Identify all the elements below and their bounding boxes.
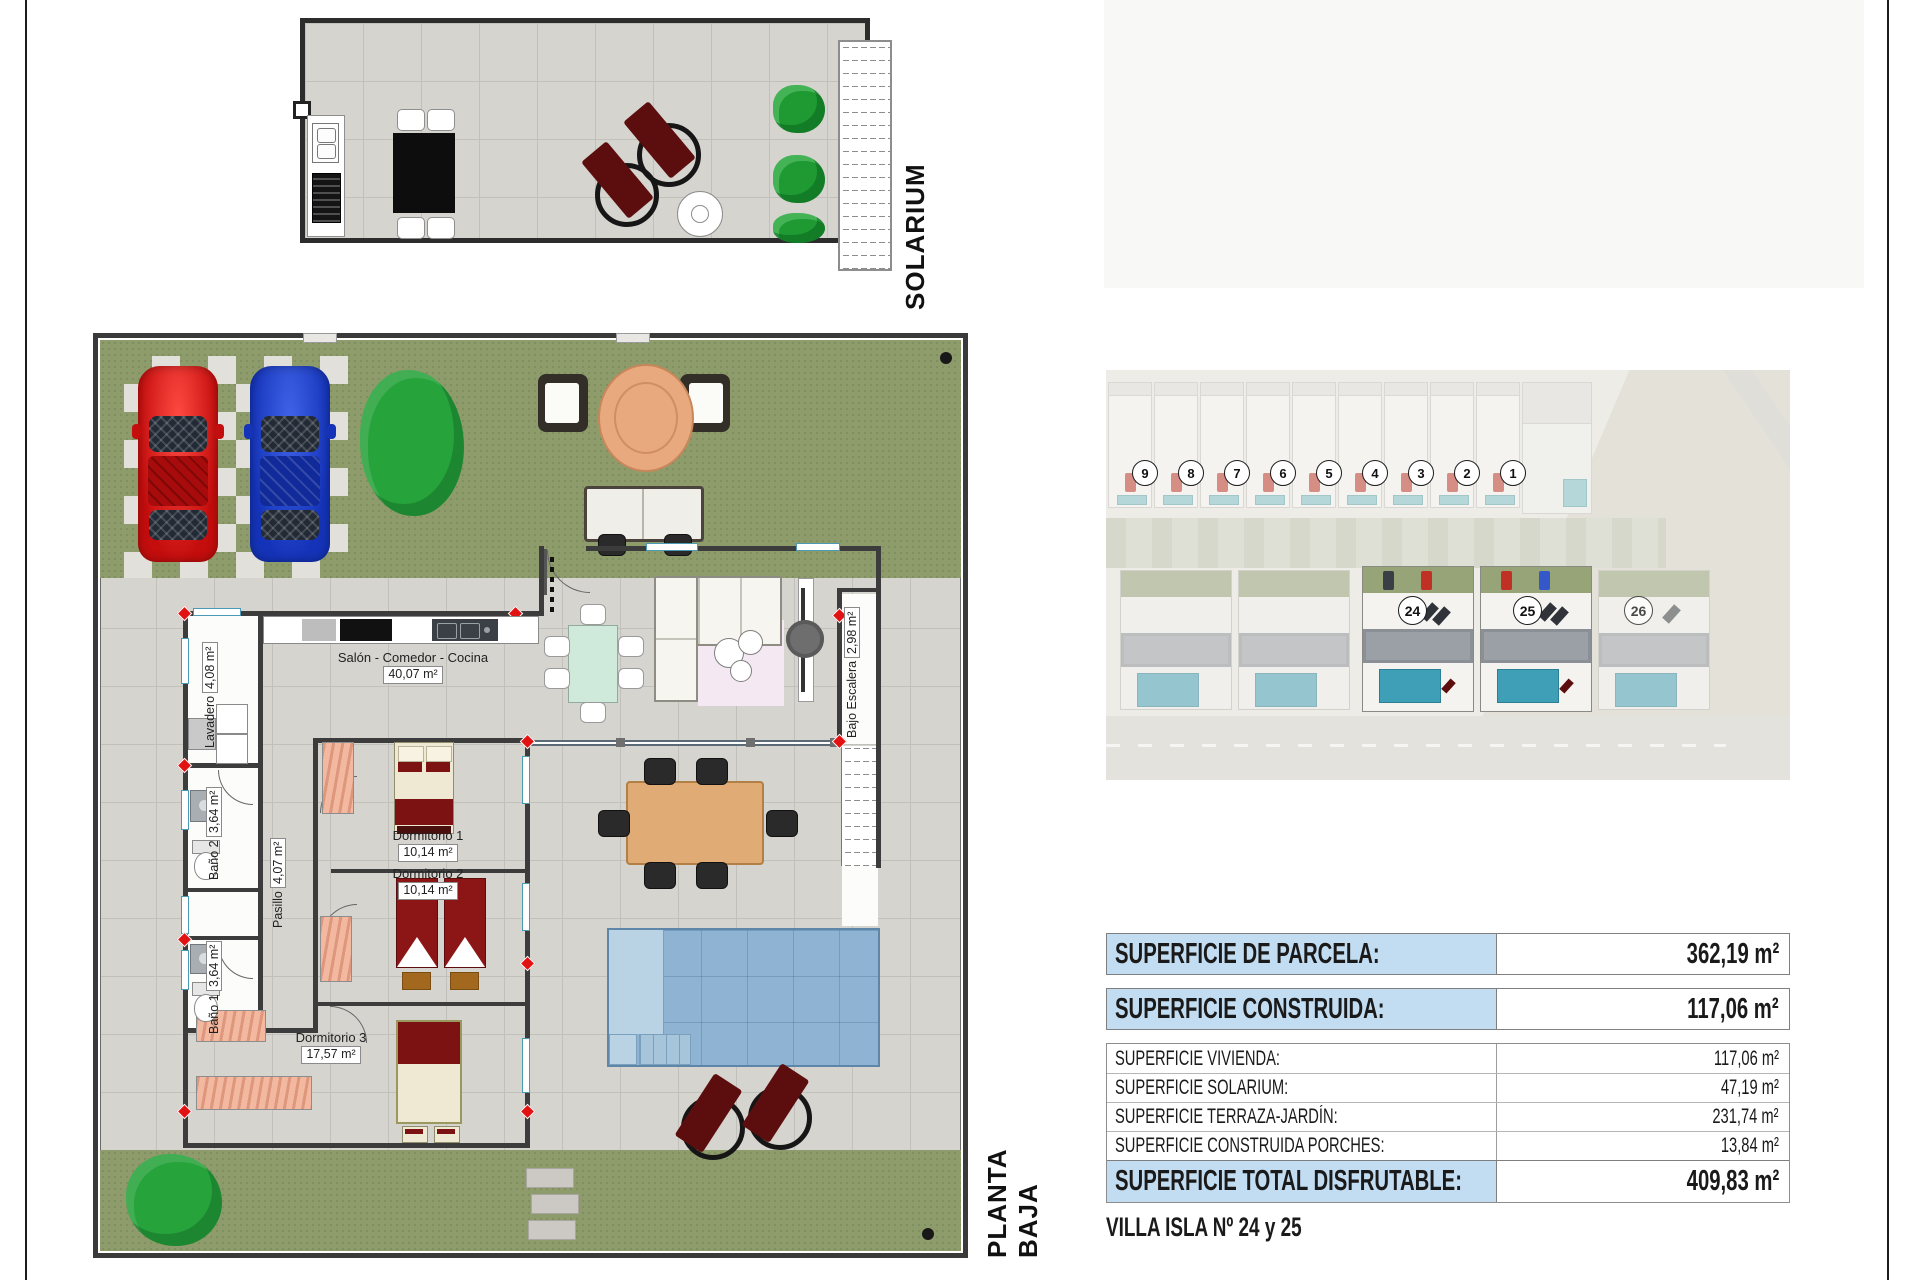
row-superficie-construida: SUPERFICIE CONSTRUIDA: 117,06 m² xyxy=(1106,988,1790,1030)
row-superficie-parcela: SUPERFICIE DE PARCELA: 362,19 m² xyxy=(1106,933,1790,975)
bed-double xyxy=(394,742,454,834)
room-label-lavadero: Lavadero 4,08 m² xyxy=(202,638,218,748)
solarium-chair xyxy=(427,217,455,239)
room-label-bano2: Baño 2 3,64 m² xyxy=(206,780,222,880)
sheet-title-text: VILLA ISLA Nº 24 y 25 xyxy=(1106,1212,1302,1243)
tree xyxy=(126,1154,222,1246)
villa-number-7: 7 xyxy=(1224,460,1250,486)
room-label-dorm1: Dormitorio 1 10,14 m² xyxy=(353,828,503,862)
corner-marker xyxy=(940,352,952,364)
washing-machine xyxy=(216,734,248,764)
kitchen-counter xyxy=(263,616,539,644)
corner-marker xyxy=(922,1228,934,1240)
room-label-bano1: Baño 1 3,64 m² xyxy=(206,934,222,1034)
footstool xyxy=(450,972,479,990)
footstool xyxy=(402,972,431,990)
room-label-dorm2: Dormitorio 2 10,14 m² xyxy=(353,866,503,900)
row-superficie-solarium: SUPERFICIE SOLARIUM: 47,19 m² xyxy=(1107,1073,1789,1102)
porch-chair xyxy=(766,810,798,837)
pool-roman-steps xyxy=(639,1034,691,1065)
dining-chair xyxy=(580,702,606,723)
red-car xyxy=(138,366,218,562)
row-value: 117,06 m² xyxy=(1688,993,1779,1026)
row-label: SUPERFICIE DE PARCELA: xyxy=(1115,938,1380,971)
solarium-pergola xyxy=(838,40,892,271)
shower-floor xyxy=(184,891,262,938)
stepping-stone xyxy=(531,1194,579,1214)
architectural-plan-sheet: { "page": { "solarium_label": "SOLARIUM"… xyxy=(0,0,1920,1280)
row-value: 231,74 m² xyxy=(1713,1105,1779,1129)
planta-baja-title-text: PLANTA BAJA xyxy=(982,1149,1043,1258)
sheet-border-left xyxy=(25,0,27,1280)
porch-chair xyxy=(598,810,630,837)
dining-chair xyxy=(544,668,570,689)
solarium-plan xyxy=(300,18,870,243)
wardrobe xyxy=(196,1076,312,1110)
porch-table xyxy=(626,781,764,865)
sectional-sofa-chaise xyxy=(654,576,698,702)
aerial-highlight-villas xyxy=(1362,566,1596,712)
coffee-table xyxy=(738,630,763,655)
room-label-salon: Salón - Comedor - Cocina 40,07 m² xyxy=(288,650,538,684)
row-value: 409,83 m² xyxy=(1686,1165,1779,1198)
solarium-grill xyxy=(312,173,341,223)
stepping-stone xyxy=(528,1220,576,1240)
villa-number-5: 5 xyxy=(1316,460,1342,486)
villa-number-25: 25 xyxy=(1513,596,1542,625)
row-value: 362,19 m² xyxy=(1686,938,1779,971)
villa-number-1: 1 xyxy=(1500,460,1526,486)
garden-round-table xyxy=(598,364,694,472)
entry-dashed-line xyxy=(550,554,554,612)
room-label-bajo-escalera: Bajo Escalera 2,98 m² xyxy=(844,598,860,738)
solarium-chair xyxy=(427,109,455,131)
swimming-pool xyxy=(607,928,880,1067)
gate-marker xyxy=(303,333,337,343)
solarium-dining-table xyxy=(393,133,455,213)
gate-marker xyxy=(616,333,650,343)
dining-chair xyxy=(618,636,644,657)
pool-steps-shelf xyxy=(609,930,664,1034)
garden-armchair xyxy=(538,374,588,432)
site-aerial-photo: 9 8 7 6 5 4 3 2 1 24 25 26 xyxy=(1106,370,1790,780)
blank-panel xyxy=(1104,0,1864,288)
solarium-chair xyxy=(397,109,425,131)
row-label: SUPERFICIE TOTAL DISFRUTABLE: xyxy=(1115,1165,1462,1198)
sliding-glass-wall xyxy=(530,740,838,746)
solarium-title: SOLARIUM xyxy=(900,150,931,310)
wardrobe xyxy=(322,742,354,814)
pool-roman-steps xyxy=(609,1034,637,1065)
row-label: SUPERFICIE CONSTRUIDA PORCHES: xyxy=(1115,1134,1385,1158)
round-side-table xyxy=(677,191,723,237)
dining-table xyxy=(568,625,618,703)
dining-chair xyxy=(544,636,570,657)
row-value: 117,06 m² xyxy=(1714,1047,1779,1071)
garden-chair xyxy=(598,534,626,556)
villa-number-3: 3 xyxy=(1408,460,1434,486)
solarium-sink xyxy=(312,123,339,163)
surface-table: SUPERFICIE DE PARCELA: 362,19 m² SUPERFI… xyxy=(1106,933,1790,1203)
surface-detail-block: SUPERFICIE VIVIENDA: 117,06 m² SUPERFICI… xyxy=(1106,1043,1790,1203)
cooktop xyxy=(340,619,392,641)
row-label: SUPERFICIE SOLARIUM: xyxy=(1115,1076,1288,1100)
solarium-floor xyxy=(305,23,865,238)
dining-chair xyxy=(580,604,606,625)
solarium-title-text: SOLARIUM xyxy=(900,163,930,310)
row-superficie-porches: SUPERFICIE CONSTRUIDA PORCHES: 13,84 m² xyxy=(1107,1131,1789,1160)
row-superficie-total: SUPERFICIE TOTAL DISFRUTABLE: 409,83 m² xyxy=(1107,1160,1789,1202)
row-label: SUPERFICIE CONSTRUIDA: xyxy=(1115,993,1385,1026)
villa-number-6: 6 xyxy=(1270,460,1296,486)
blue-car xyxy=(250,366,330,562)
plant xyxy=(773,85,825,133)
planta-baja-plan: Lavadero 4,08 m² Baño 2 3,64 m² Pasillo … xyxy=(93,333,968,1258)
row-superficie-vivienda: SUPERFICIE VIVIENDA: 117,06 m² xyxy=(1107,1044,1789,1073)
sheet-title: VILLA ISLA Nº 24 y 25 xyxy=(1106,1212,1385,1243)
porch-chair xyxy=(644,862,676,889)
porch-chair xyxy=(644,758,676,785)
villa-number-26: 26 xyxy=(1624,596,1653,625)
row-label: SUPERFICIE TERRAZA-JARDÍN: xyxy=(1115,1105,1338,1129)
row-value: 13,84 m² xyxy=(1721,1134,1779,1158)
row-value: 47,19 m² xyxy=(1721,1076,1779,1100)
washing-machine xyxy=(216,704,248,734)
staircase xyxy=(841,746,877,866)
porch-chair xyxy=(696,862,728,889)
porch-chair xyxy=(696,758,728,785)
plant xyxy=(773,213,825,243)
row-label: SUPERFICIE VIVIENDA: xyxy=(1115,1047,1280,1071)
villa-number-8: 8 xyxy=(1178,460,1204,486)
wardrobe xyxy=(320,916,352,982)
dining-chair xyxy=(618,668,644,689)
plant xyxy=(773,155,825,203)
bed-bench xyxy=(402,1126,428,1143)
coffee-table xyxy=(730,660,752,682)
kitchen-sink xyxy=(432,619,498,641)
porch-floor xyxy=(842,866,878,926)
villa-number-2: 2 xyxy=(1454,460,1480,486)
room-label-dorm3: Dormitorio 3 17,57 m² xyxy=(256,1030,406,1064)
stepping-stone xyxy=(526,1168,574,1188)
tv-unit xyxy=(786,620,824,658)
planta-baja-title: PLANTA BAJA xyxy=(982,1068,1044,1258)
bed-bench xyxy=(434,1126,460,1143)
solarium-chair xyxy=(397,217,425,239)
row-superficie-terraza-jardin: SUPERFICIE TERRAZA-JARDÍN: 231,74 m² xyxy=(1107,1102,1789,1131)
villa-24 xyxy=(1362,566,1474,712)
villa-number-4: 4 xyxy=(1362,460,1388,486)
villa-number-24: 24 xyxy=(1398,596,1427,625)
villa-number-9: 9 xyxy=(1132,460,1158,486)
room-label-pasillo: Pasillo 4,07 m² xyxy=(270,828,286,928)
sheet-border-right xyxy=(1887,0,1889,1280)
villa-25 xyxy=(1480,566,1592,712)
